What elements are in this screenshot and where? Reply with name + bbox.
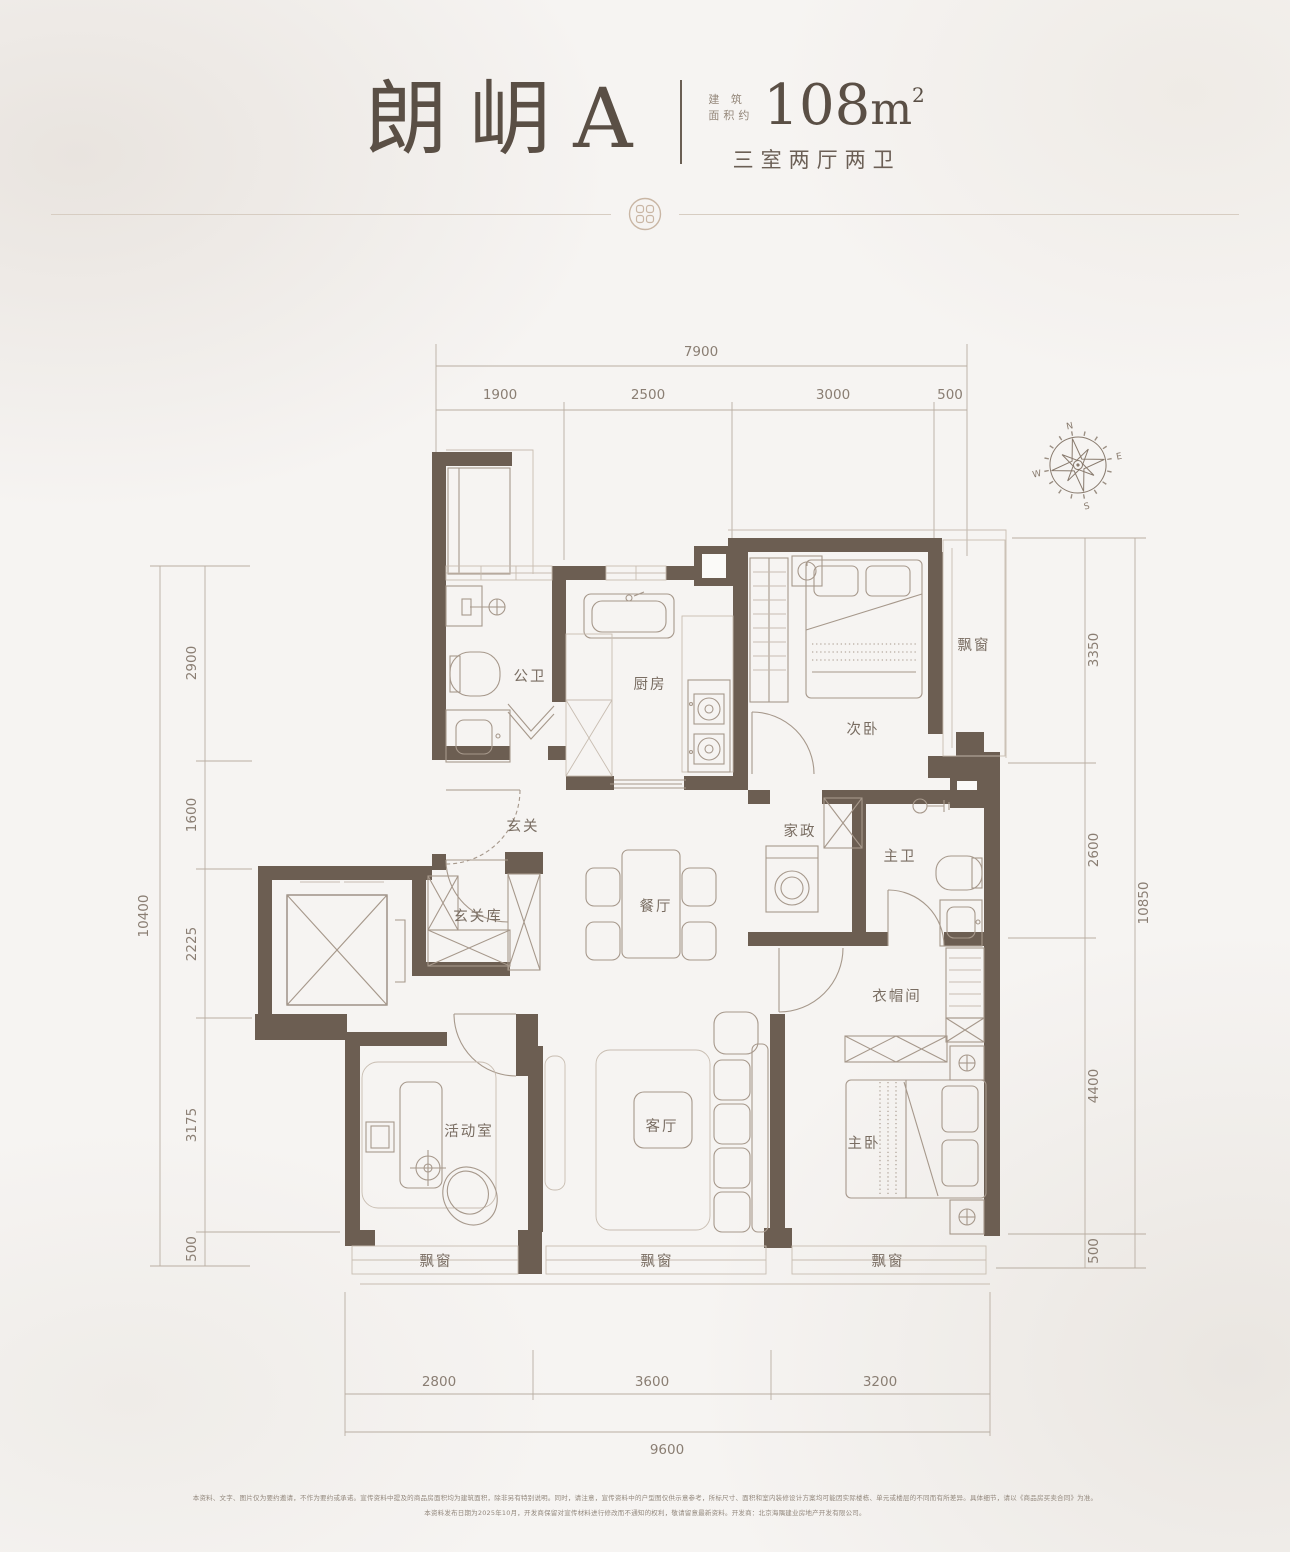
footer-disclaimer: 本资料、文字、图片仅为要约邀请，不作为要约或承诺。宣传资料中提及的商品房面积均为… — [0, 1492, 1290, 1517]
room-label-activity-room: 活动室 — [444, 1123, 494, 1140]
compass-east-label: E — [1115, 452, 1123, 463]
dimensions-right: 3350 2600 4400 500 10850 — [996, 538, 1152, 1268]
room-label-kitchen: 厨房 — [634, 676, 667, 693]
housekeeping-fixtures — [766, 798, 862, 912]
dim-top-seg4: 500 — [937, 387, 963, 403]
disclaimer-line2: 本资料发布日期为2025年10月，开发商保留对宣传材料进行修改而不通知的权利，敬… — [0, 1507, 1290, 1517]
room-label-bath-public: 公卫 — [514, 669, 547, 685]
dim-bottom-seg1: 2800 — [422, 1374, 456, 1390]
room-label-bay-mid: 飘窗 — [641, 1252, 674, 1270]
dim-top-seg1: 1900 — [483, 387, 517, 403]
dim-top-seg3: 3000 — [816, 387, 850, 403]
dim-top-total: 7900 — [684, 344, 718, 360]
room-label-bath-master: 主卫 — [884, 848, 917, 865]
dim-top-seg2: 2500 — [631, 387, 665, 403]
room-label-foyer-storage: 玄关库 — [453, 908, 503, 925]
room-label-bay-right2: 飘窗 — [872, 1252, 905, 1270]
bedroom-second-furniture — [750, 556, 922, 702]
room-label-living-room: 客厅 — [646, 1118, 679, 1135]
dim-bottom-seg3: 3200 — [863, 1374, 897, 1390]
cloakroom-cabinets — [946, 948, 984, 1042]
room-label-dining: 餐厅 — [640, 898, 673, 915]
bedroom-master-furniture — [845, 1036, 986, 1234]
room-label-bay-left: 飘窗 — [420, 1252, 453, 1270]
dim-bottom-seg2: 3600 — [635, 1374, 669, 1390]
dim-left-seg5: 500 — [184, 1236, 200, 1262]
room-label-housekeeping: 家政 — [784, 823, 817, 840]
elevator-shaft — [287, 882, 405, 1005]
dimensions-top: 7900 1900 2500 3000 500 — [436, 344, 967, 560]
disclaimer-line1: 本资料、文字、图片仅为要约邀请，不作为要约或承诺。宣传资料中提及的商品房面积均为… — [0, 1492, 1290, 1502]
dim-right-seg2: 2600 — [1086, 833, 1102, 867]
dim-left-seg4: 3175 — [184, 1108, 200, 1142]
dimensions-bottom: 2800 3600 3200 9600 — [345, 1292, 990, 1458]
dim-left-seg1: 2900 — [184, 646, 200, 680]
dim-left-total: 10400 — [136, 895, 152, 938]
floor-plan: N S E W 7900 1900 2500 3000 500 10400 29… — [0, 0, 1290, 1552]
dim-bottom-total: 9600 — [650, 1442, 684, 1458]
dim-right-seg3: 4400 — [1086, 1069, 1102, 1103]
compass-icon: N S E W — [1023, 413, 1132, 522]
dimensions-left: 10400 2900 1600 2225 3175 500 — [136, 566, 340, 1266]
room-label-bay-right: 飘窗 — [958, 636, 991, 654]
dim-left-seg2: 1600 — [184, 798, 200, 832]
bath-master-fixtures — [913, 799, 982, 946]
dim-right-seg1: 3350 — [1086, 633, 1102, 667]
compass-south-label: S — [1083, 502, 1091, 513]
room-label-cloakroom: 衣帽间 — [872, 988, 922, 1005]
compass-west-label: W — [1032, 469, 1043, 481]
room-label-bedroom-second: 次卧 — [847, 721, 880, 738]
activity-room-furniture — [362, 1062, 508, 1235]
dim-right-seg4: 500 — [1086, 1238, 1102, 1264]
bath-public-fixtures — [446, 586, 510, 762]
dim-right-total: 10850 — [1136, 882, 1152, 925]
dim-left-seg3: 2225 — [184, 927, 200, 961]
room-label-foyer: 玄关 — [507, 818, 540, 835]
room-label-bedroom-master: 主卧 — [848, 1135, 881, 1152]
compass-north-label: N — [1066, 421, 1075, 432]
